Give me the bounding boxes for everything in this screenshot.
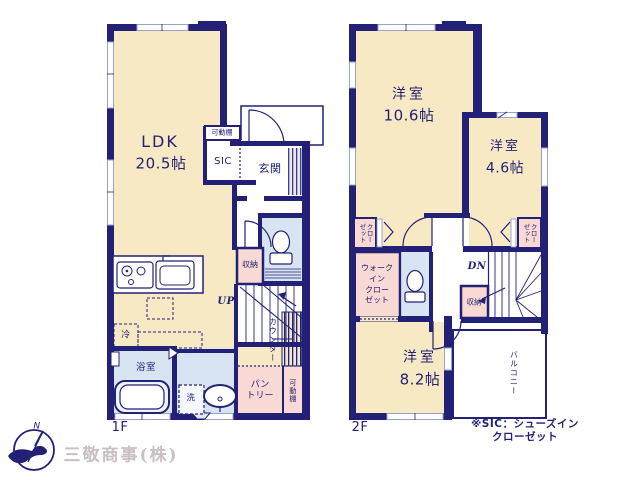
floor1-plan bbox=[107, 21, 323, 420]
hall-2f-lower bbox=[433, 252, 463, 318]
fridge-label: 冷 bbox=[121, 330, 131, 341]
shelf-top-label: 可動棚 bbox=[212, 129, 233, 138]
room-large-label: 洋室 bbox=[392, 86, 426, 104]
company-logo-text: 三敬商事(株) bbox=[63, 445, 178, 466]
sic-note: ※SIC：シューズインクローゼット bbox=[468, 418, 583, 444]
floorplan-drawing bbox=[0, 0, 640, 480]
bath-label: 浴室 bbox=[136, 362, 156, 374]
laundry-label: 洗 bbox=[186, 394, 195, 405]
ldk-size-label: 20.5帖 bbox=[136, 155, 187, 174]
porch bbox=[241, 106, 323, 145]
room-large-size: 10.6帖 bbox=[384, 107, 435, 126]
entrance-step-hatch bbox=[288, 148, 302, 195]
hall-2f bbox=[432, 218, 463, 246]
compass-icon bbox=[8, 430, 54, 470]
room-small-label: 洋室 bbox=[490, 139, 520, 155]
storage-1f-label: 収納 bbox=[242, 260, 258, 270]
ldk-label: LDK bbox=[141, 132, 179, 152]
walk-in-closet-label: ウォーク イン クロー ゼット bbox=[361, 263, 393, 306]
compass-north-label: N bbox=[33, 421, 40, 432]
floor2-label: 2F bbox=[352, 420, 369, 436]
stove-icon bbox=[117, 262, 153, 288]
counter-label: カウンター bbox=[268, 318, 277, 363]
room-mid-label: 洋室 bbox=[403, 349, 437, 367]
closet-right-label: クロー ゼット bbox=[522, 223, 536, 243]
kitchen-counter bbox=[113, 256, 203, 293]
basin-icon bbox=[204, 385, 236, 407]
sic-label: SIC bbox=[214, 156, 232, 169]
floorplan-page: LDK 20.5帖 可動棚 SIC 玄関 収納 UP カウンター 冷 浴室 洗 … bbox=[0, 0, 640, 480]
toilet-icon-2f bbox=[405, 271, 425, 303]
stairs-up-label: UP bbox=[217, 296, 234, 309]
floor1-label: 1F bbox=[112, 420, 129, 436]
shelf-bottom-label: 可動棚 bbox=[288, 379, 296, 403]
balcony-label: バルコニー bbox=[509, 351, 518, 396]
pantry-label: パン トリー bbox=[246, 380, 273, 403]
balcony-area bbox=[453, 330, 546, 418]
closet-left-label: クロー ゼット bbox=[358, 223, 372, 243]
room-mid-size: 8.2帖 bbox=[400, 371, 441, 390]
storage-2f-label: 収納 bbox=[467, 297, 482, 306]
room-small-size: 4.6帖 bbox=[486, 160, 524, 178]
entrance-label: 玄関 bbox=[259, 162, 282, 176]
stairs-down-label: DN bbox=[468, 261, 487, 274]
